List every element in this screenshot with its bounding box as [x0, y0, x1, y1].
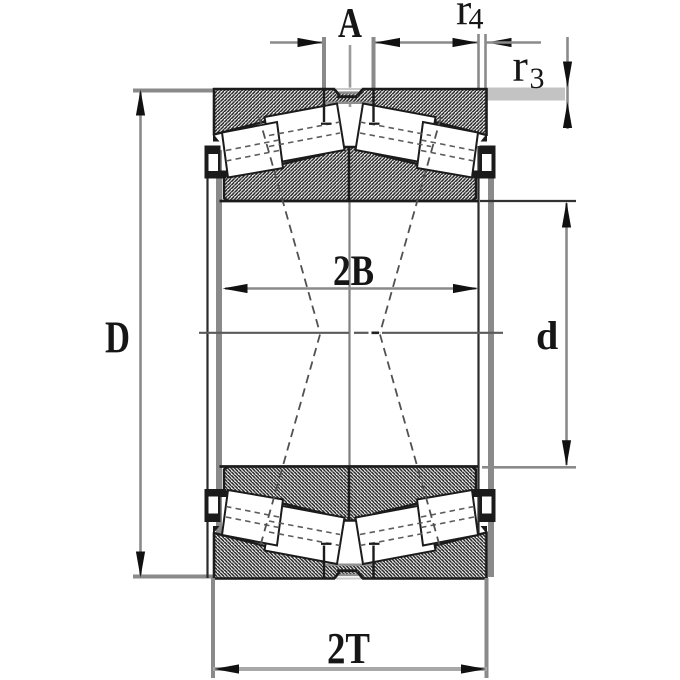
svg-text:r: r [513, 40, 528, 91]
svg-text:3: 3 [530, 62, 545, 95]
svg-text:A: A [338, 1, 363, 47]
svg-text:4: 4 [469, 3, 484, 36]
svg-text:d: d [536, 313, 558, 358]
svg-text:D: D [105, 313, 130, 363]
svg-text:2B: 2B [333, 248, 374, 295]
svg-text:2T: 2T [327, 624, 370, 673]
